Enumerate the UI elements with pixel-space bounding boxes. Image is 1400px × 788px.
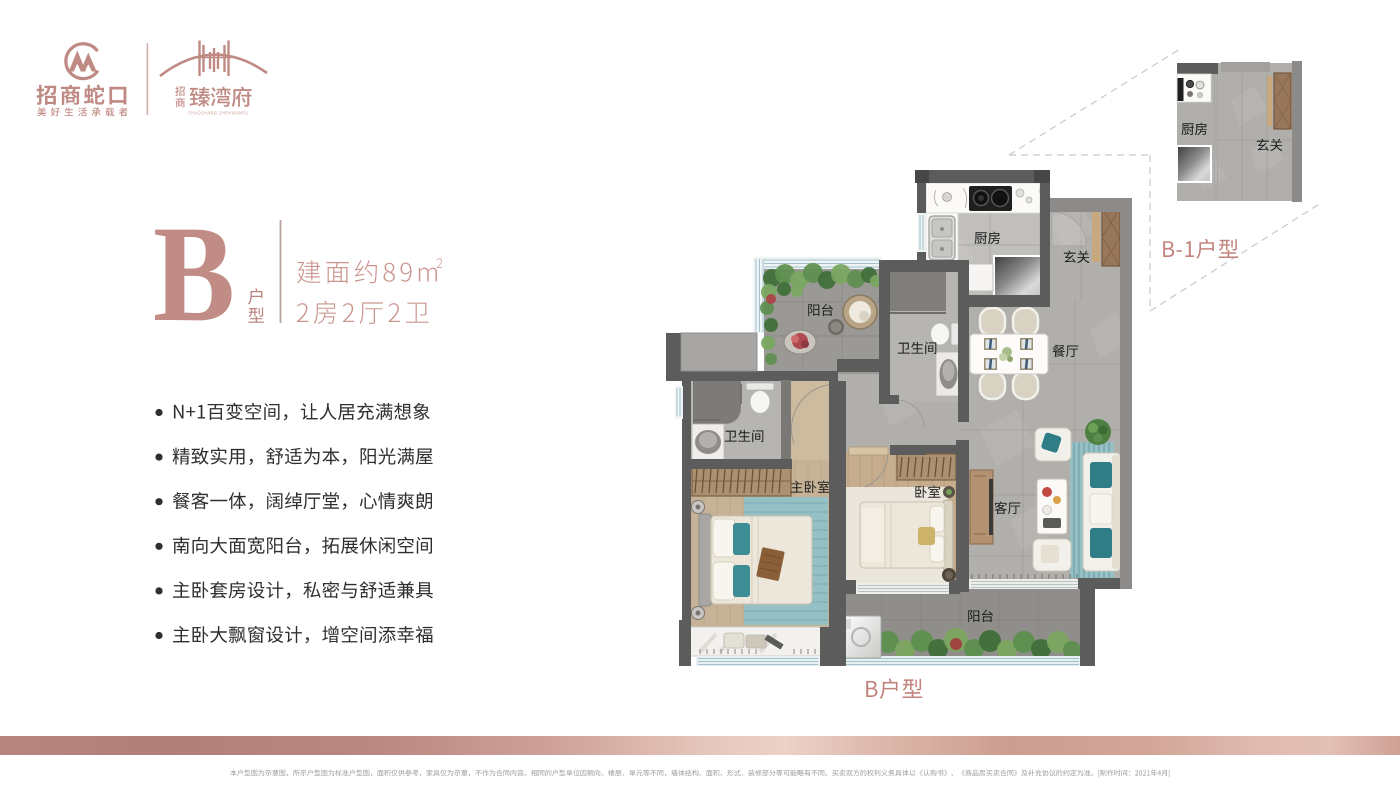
svg-text:B: B bbox=[153, 197, 235, 350]
